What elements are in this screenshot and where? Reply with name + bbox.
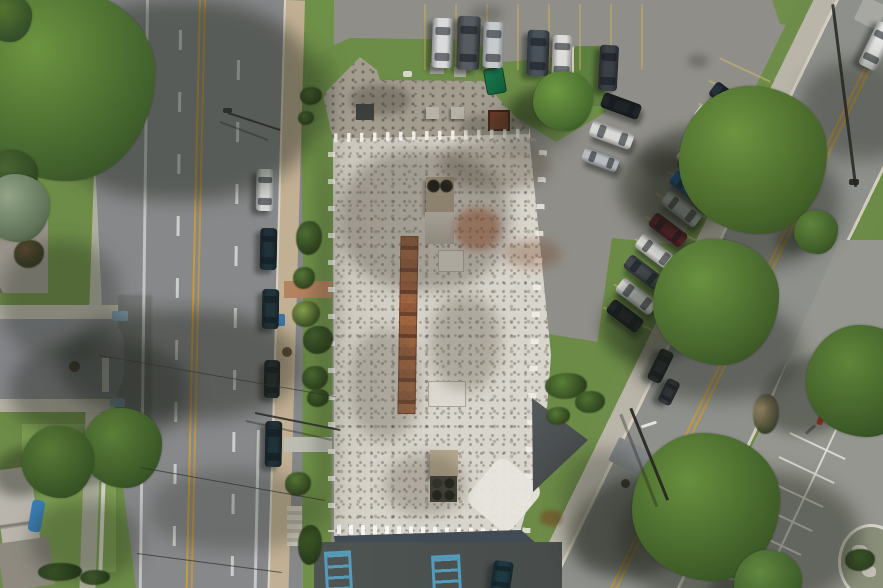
line-6	[832, 4, 857, 187]
line-10	[805, 424, 816, 434]
line-7	[140, 467, 325, 501]
line-3	[246, 420, 332, 441]
wire-and-pole-layer	[0, 0, 883, 588]
aerial-photo-canvas	[0, 0, 883, 588]
line-2	[255, 412, 340, 431]
line-9	[100, 355, 335, 397]
line-8	[137, 553, 282, 573]
